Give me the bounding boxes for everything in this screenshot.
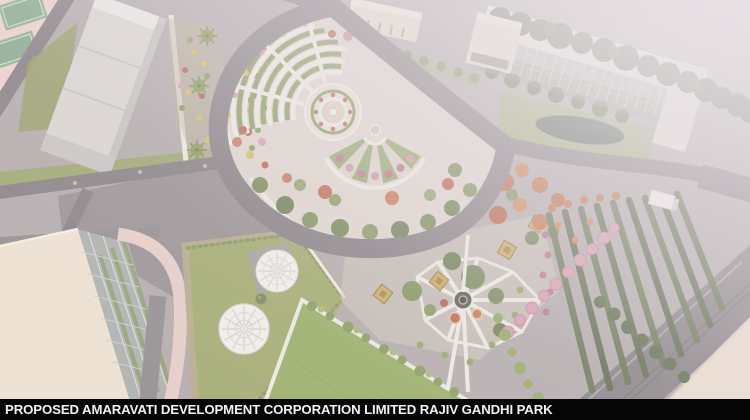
park-rendering [0,0,750,420]
screenshot-root: PROPOSED AMARAVATI DEVELOPMENT CORPORATI… [0,0,750,420]
haze-corner [0,0,750,420]
caption-bar: PROPOSED AMARAVATI DEVELOPMENT CORPORATI… [0,399,750,420]
caption-text: PROPOSED AMARAVATI DEVELOPMENT CORPORATI… [5,402,553,417]
